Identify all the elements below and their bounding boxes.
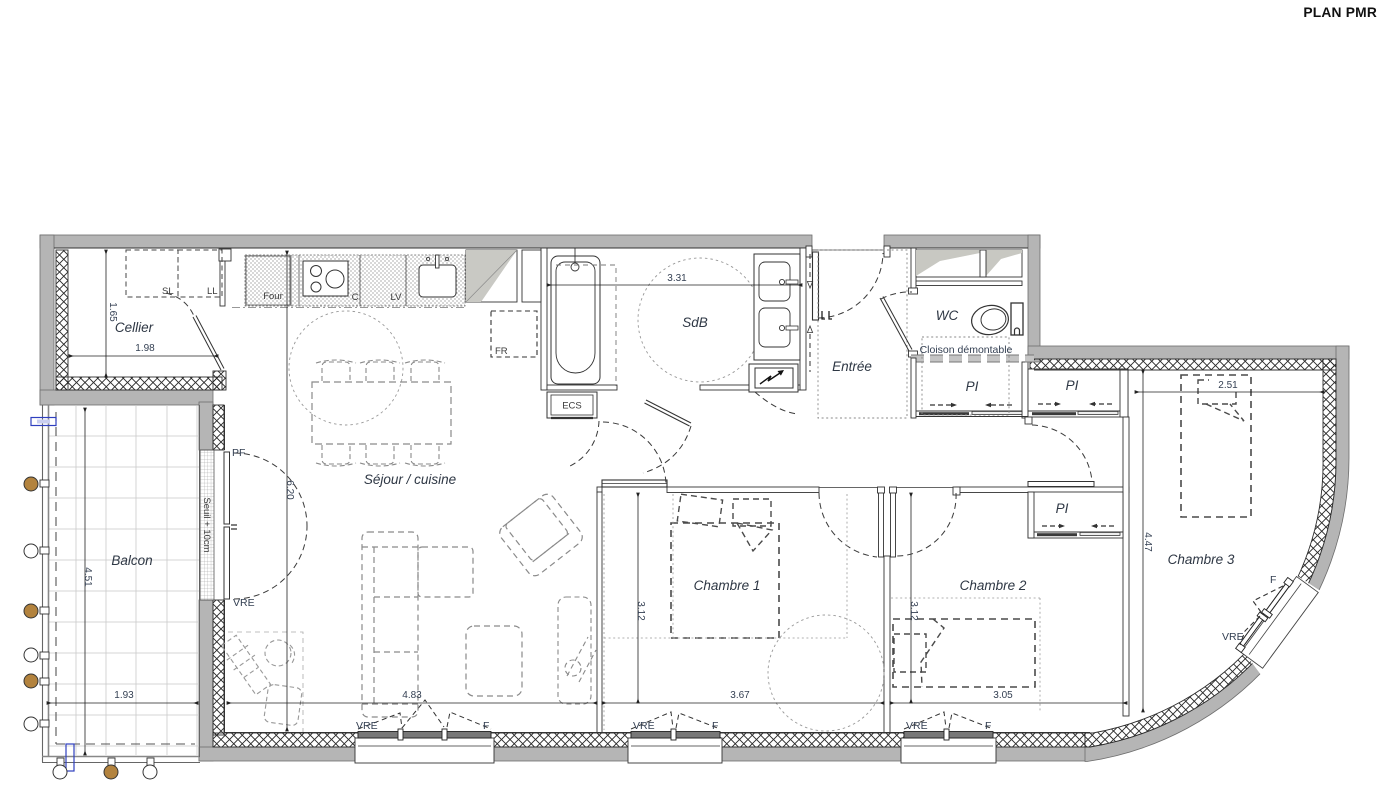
svg-text:6.20: 6.20 bbox=[284, 480, 295, 500]
svg-text:VRE: VRE bbox=[633, 720, 655, 732]
svg-text:Chambre 1: Chambre 1 bbox=[694, 578, 761, 593]
svg-text:Cloison démontable: Cloison démontable bbox=[920, 344, 1013, 356]
svg-text:Seuil + 10cm: Seuil + 10cm bbox=[201, 497, 212, 552]
svg-text:SL: SL bbox=[162, 286, 174, 297]
svg-text:FR: FR bbox=[495, 346, 508, 357]
svg-text:PI: PI bbox=[966, 379, 979, 394]
svg-text:F: F bbox=[1270, 574, 1276, 586]
svg-text:VRE: VRE bbox=[233, 597, 255, 609]
svg-text:F: F bbox=[712, 720, 718, 732]
svg-text:C: C bbox=[352, 292, 359, 303]
svg-text:LL: LL bbox=[207, 286, 218, 297]
svg-text:VRE: VRE bbox=[356, 720, 378, 732]
svg-text:PI: PI bbox=[1066, 378, 1079, 393]
svg-text:3.31: 3.31 bbox=[667, 273, 687, 284]
svg-text:2.51: 2.51 bbox=[1218, 380, 1238, 391]
svg-text:1.98: 1.98 bbox=[135, 343, 155, 354]
svg-text:PF: PF bbox=[232, 447, 245, 459]
svg-text:3.12: 3.12 bbox=[635, 601, 646, 621]
svg-text:Entrée: Entrée bbox=[832, 359, 872, 374]
svg-text:PLAN PMR: PLAN PMR bbox=[1303, 5, 1377, 20]
svg-text:Chambre 3: Chambre 3 bbox=[1168, 552, 1235, 567]
svg-text:PI: PI bbox=[1056, 501, 1069, 516]
svg-text:Séjour / cuisine: Séjour / cuisine bbox=[364, 472, 456, 487]
svg-text:4.47: 4.47 bbox=[1142, 532, 1153, 552]
svg-text:3.12: 3.12 bbox=[908, 601, 919, 621]
svg-text:Chambre 2: Chambre 2 bbox=[960, 578, 1027, 593]
svg-text:SdB: SdB bbox=[682, 315, 708, 330]
svg-text:WC: WC bbox=[936, 308, 959, 323]
svg-text:F: F bbox=[985, 720, 991, 732]
svg-text:Balcon: Balcon bbox=[111, 553, 152, 568]
svg-text:3.67: 3.67 bbox=[730, 690, 750, 701]
svg-text:LV: LV bbox=[391, 292, 403, 303]
svg-text:3.05: 3.05 bbox=[993, 690, 1013, 701]
svg-text:4.83: 4.83 bbox=[402, 690, 422, 701]
svg-text:Four: Four bbox=[263, 291, 283, 302]
svg-text:VRE: VRE bbox=[1222, 631, 1244, 643]
svg-text:F: F bbox=[483, 720, 489, 732]
svg-text:Cellier: Cellier bbox=[115, 320, 154, 335]
svg-text:1.93: 1.93 bbox=[114, 690, 134, 701]
svg-text:ECS: ECS bbox=[562, 401, 582, 412]
svg-text:VRE: VRE bbox=[906, 720, 928, 732]
svg-text:4.51: 4.51 bbox=[82, 567, 93, 587]
